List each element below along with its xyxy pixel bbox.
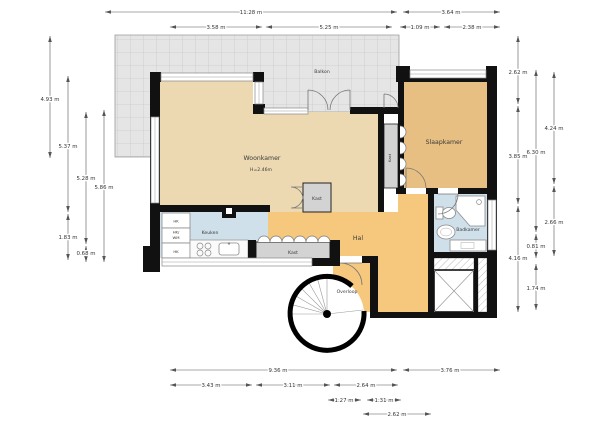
cupboard-label: HK/ xyxy=(173,230,180,235)
dim-label: 3.11 m xyxy=(284,383,303,389)
washbasin-icon xyxy=(437,225,455,239)
bedroom-closet: Kast xyxy=(384,124,398,188)
bedroom-label: Slaapkamer xyxy=(426,139,463,146)
dim-label: 4.16 m xyxy=(509,256,528,262)
dim-label: 3.58 m xyxy=(207,25,226,31)
dim-label: 1.27 m xyxy=(335,398,354,404)
living-room-label: Woonkamer xyxy=(244,155,281,162)
flue-notch xyxy=(226,208,232,214)
dim-label: 3.43 m xyxy=(202,383,221,389)
dim-label: 0.68 m xyxy=(77,251,96,257)
dim-label: 6.30 m xyxy=(527,150,546,156)
floorplan-drawing: HK HK/ WM HK Kast Kast Kast xyxy=(0,0,600,424)
cupboard-label: HK xyxy=(173,219,179,224)
dim-label: 3.64 m xyxy=(442,10,461,16)
hatched-void xyxy=(434,258,474,270)
dim-label: 3.85 m xyxy=(509,154,528,160)
balcony-label: Balkon xyxy=(314,69,330,75)
stair-center-post xyxy=(323,310,331,318)
dim-label: 1.31 m xyxy=(375,398,394,404)
dim-label: 5.86 m xyxy=(95,185,114,191)
hall-closet: Kast xyxy=(256,242,330,260)
hall-label: Hal xyxy=(353,235,363,242)
kitchen-cupboards: HK HK/ WM HK xyxy=(162,213,190,258)
dim-label: 2.62 m xyxy=(388,412,407,418)
bedroom-door-opening xyxy=(406,188,426,194)
ceiling-height-label: H=2.46m xyxy=(250,167,273,173)
dim-label: 1.74 m xyxy=(527,286,546,292)
hall-lower-floor xyxy=(376,256,428,312)
dim-label: 11.28 m xyxy=(240,10,262,16)
bathroom-label: Badkamer xyxy=(456,227,480,233)
dim-label: 1.83 m xyxy=(59,235,78,241)
dim-label: 4.24 m xyxy=(545,126,564,132)
kitchen-label: Keuken xyxy=(202,230,219,236)
dim-label: 2.62 m xyxy=(509,70,528,76)
dim-label: 2.66 m xyxy=(545,220,564,226)
closet-label: Kast xyxy=(387,153,392,162)
dim-label: 5.37 m xyxy=(59,144,78,150)
vanity-icon xyxy=(450,240,486,251)
cupboard-label: HK xyxy=(173,249,179,254)
bedroom-floor xyxy=(404,82,487,188)
dim-label: 4.93 m xyxy=(41,97,60,103)
dim-label: 9.36 m xyxy=(269,368,288,374)
cupboard-label: WM xyxy=(172,235,179,240)
dim-label: 0.81 m xyxy=(527,244,546,250)
hall-corridor-floor xyxy=(398,194,428,256)
bathroom-door-opening xyxy=(438,188,458,194)
dim-label: 5.25 m xyxy=(320,25,339,31)
kitchen-counter xyxy=(190,240,248,258)
toilet-tank-icon xyxy=(436,207,443,219)
dim-label: 1.09 m xyxy=(411,25,430,31)
faucet-icon xyxy=(228,242,230,244)
floorplan-canvas: HK HK/ WM HK Kast Kast Kast xyxy=(0,0,600,424)
dim-label: 2.64 m xyxy=(357,383,376,389)
closet-label: Kast xyxy=(312,196,322,202)
dim-label: 3.76 m xyxy=(441,368,460,374)
dim-label: 5.28 m xyxy=(77,176,96,182)
sink-icon xyxy=(219,243,239,255)
closet-label: Kast xyxy=(288,250,298,256)
dim-label: 2.38 m xyxy=(463,25,482,31)
landing-label: Overloop xyxy=(337,289,358,295)
void-shaft-area xyxy=(434,258,487,312)
hatched-void xyxy=(478,258,487,312)
